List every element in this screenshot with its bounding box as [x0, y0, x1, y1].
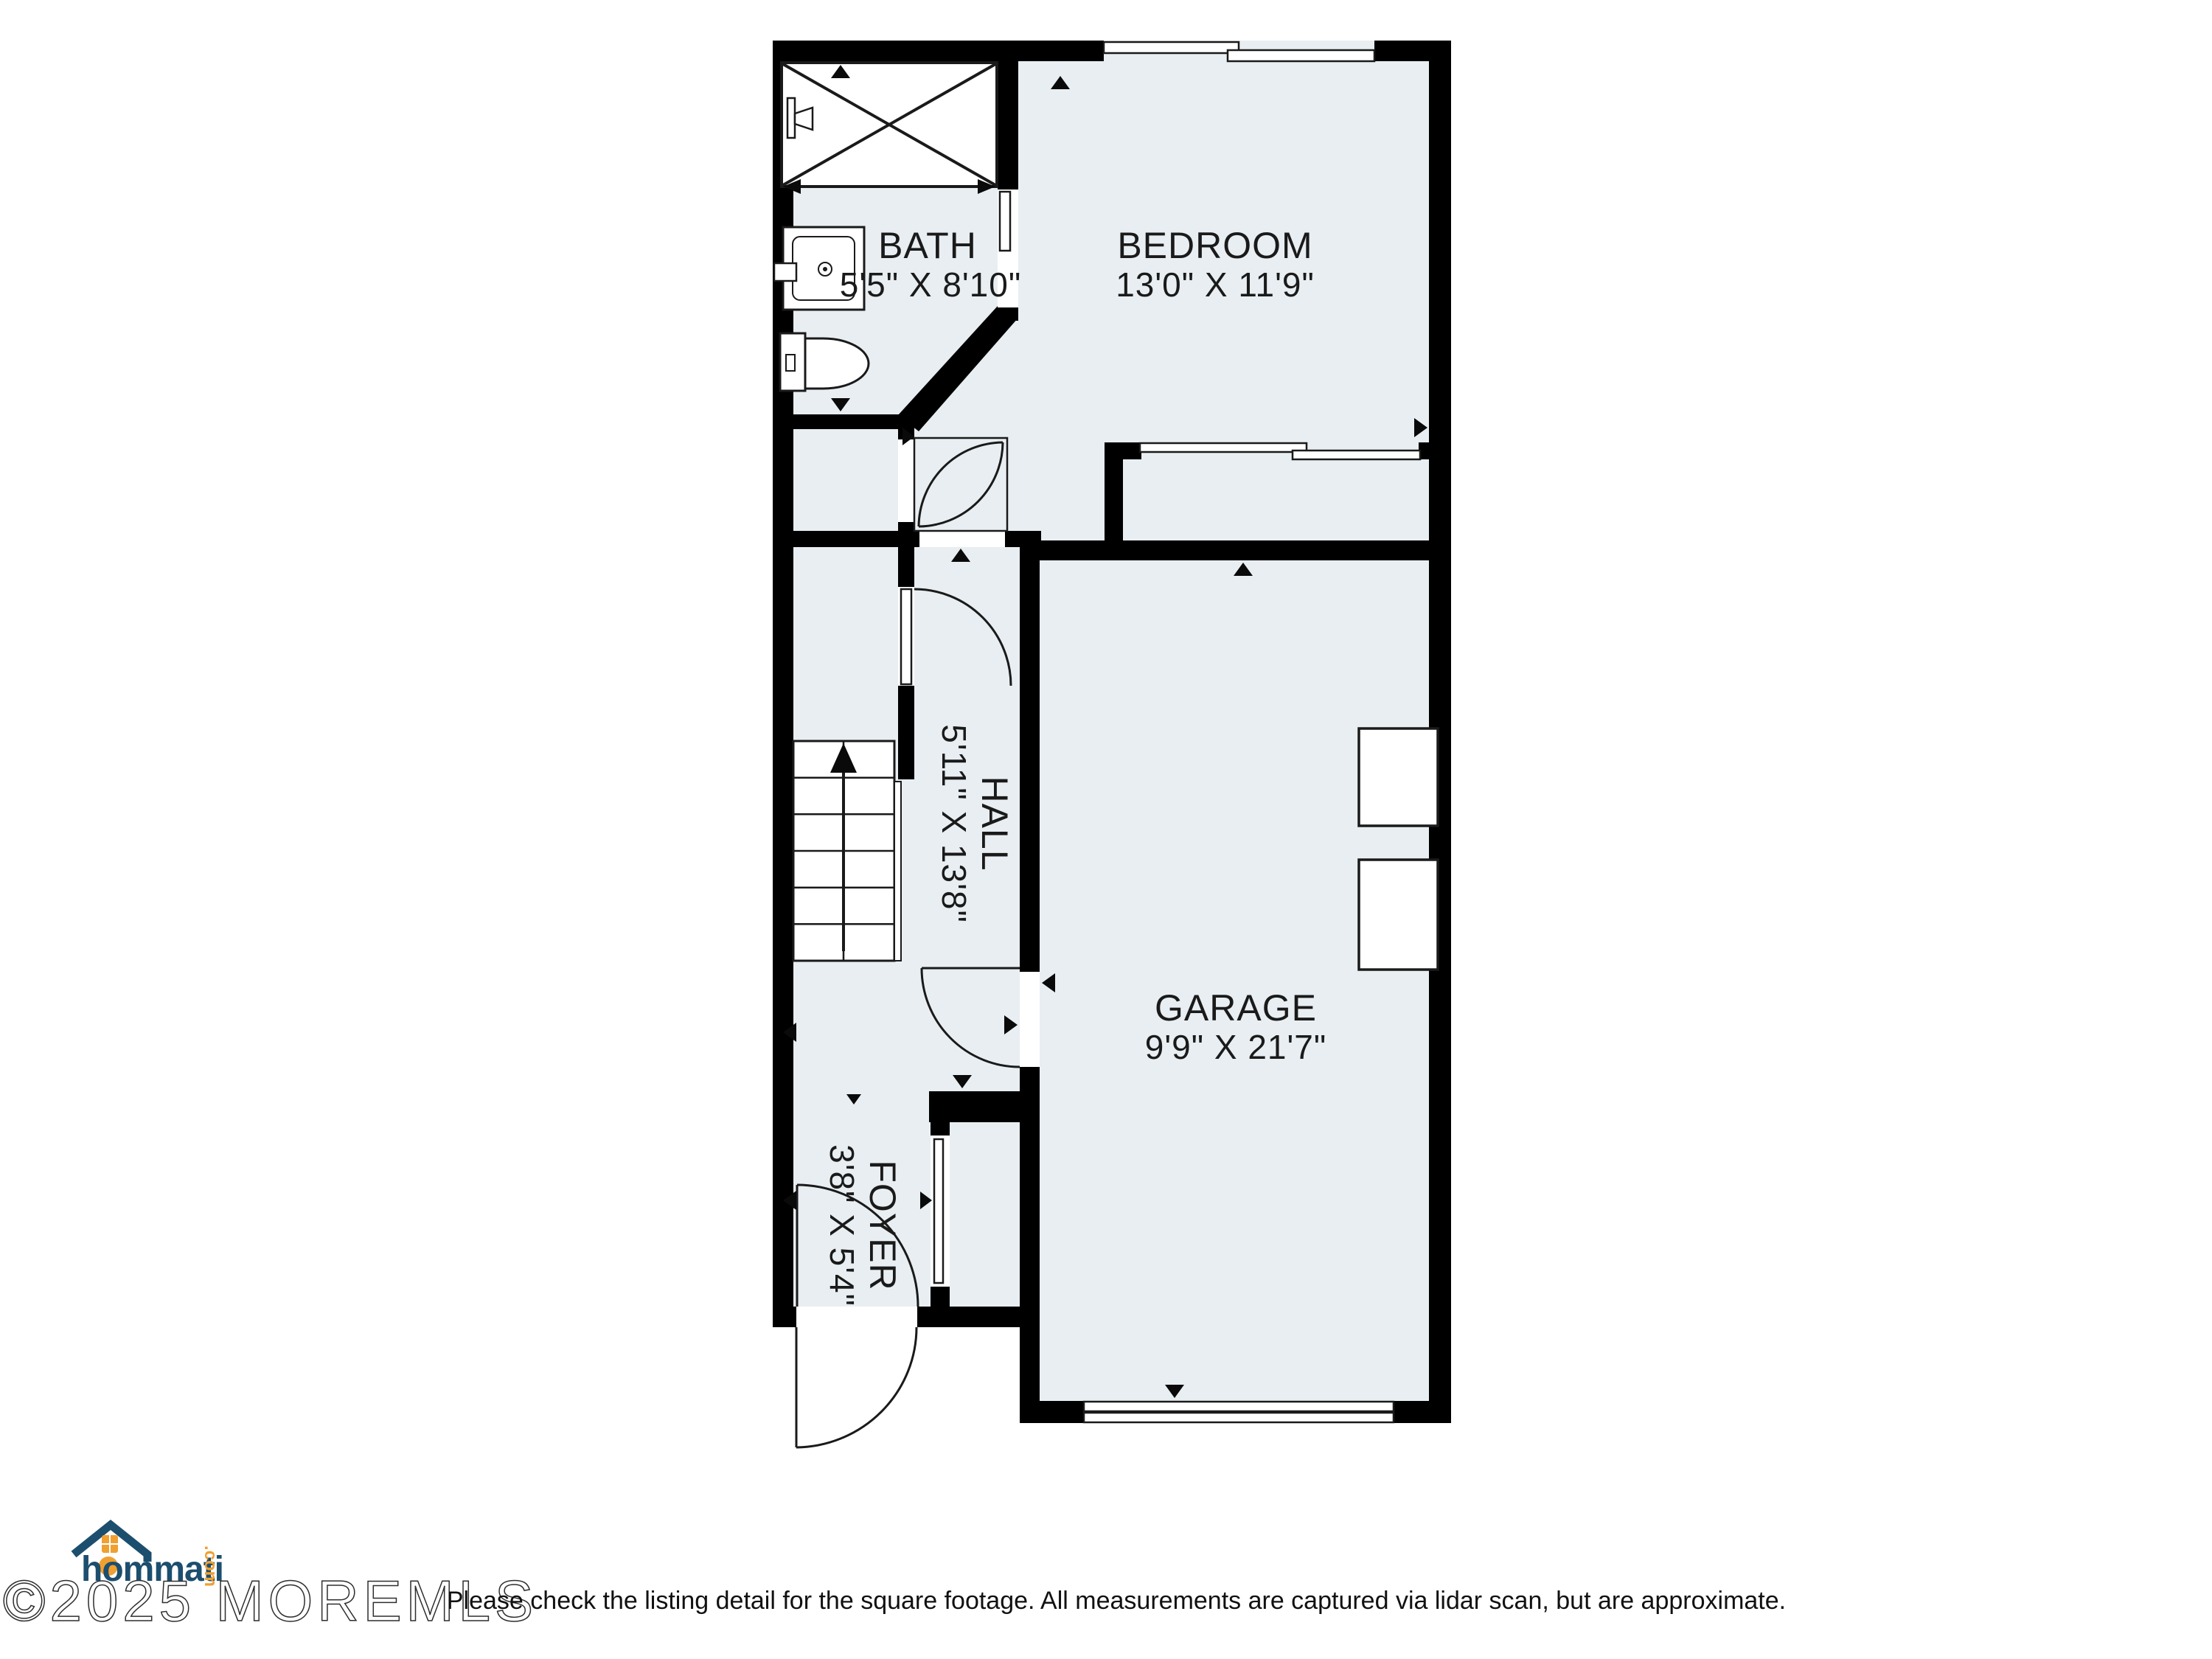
- disclaimer-text: Please check the listing detail for the …: [447, 1587, 1786, 1615]
- room-dims-bedroom: 13'0" X 11'9": [1116, 265, 1315, 304]
- room-dims-bath: 5'5" X 8'10": [840, 265, 1021, 304]
- room-label-bedroom: BEDROOM: [1117, 225, 1312, 266]
- room-dims-hall: 5'11" X 13'8": [935, 724, 973, 923]
- room-dims-garage: 9'9" X 21'7": [1145, 1028, 1326, 1066]
- garage-door: [1084, 1402, 1394, 1422]
- floor-plan-page: BATH 5'5" X 8'10" BEDROOM 13'0" X 11'9" …: [0, 0, 2212, 1659]
- floor-plan: BATH 5'5" X 8'10" BEDROOM 13'0" X 11'9" …: [0, 0, 2212, 1659]
- room-label-garage: GARAGE: [1155, 987, 1317, 1029]
- room-label-bath: BATH: [878, 225, 977, 266]
- room-dims-foyer: 3'8" X 5'4": [823, 1144, 861, 1307]
- window-bedroom-bottom: [1293, 451, 1420, 459]
- pocket-door: [1000, 192, 1010, 251]
- window-bedroom-top: [1228, 50, 1374, 61]
- window-bedroom-bottom: [1140, 443, 1307, 452]
- sliding-door: [934, 1139, 943, 1283]
- room-label-foyer: FOYER: [862, 1160, 903, 1290]
- room-label-hall: HALL: [974, 776, 1015, 871]
- staircase: [793, 741, 901, 961]
- window-bedroom-top: [1104, 42, 1239, 53]
- shower-icon: [782, 63, 997, 194]
